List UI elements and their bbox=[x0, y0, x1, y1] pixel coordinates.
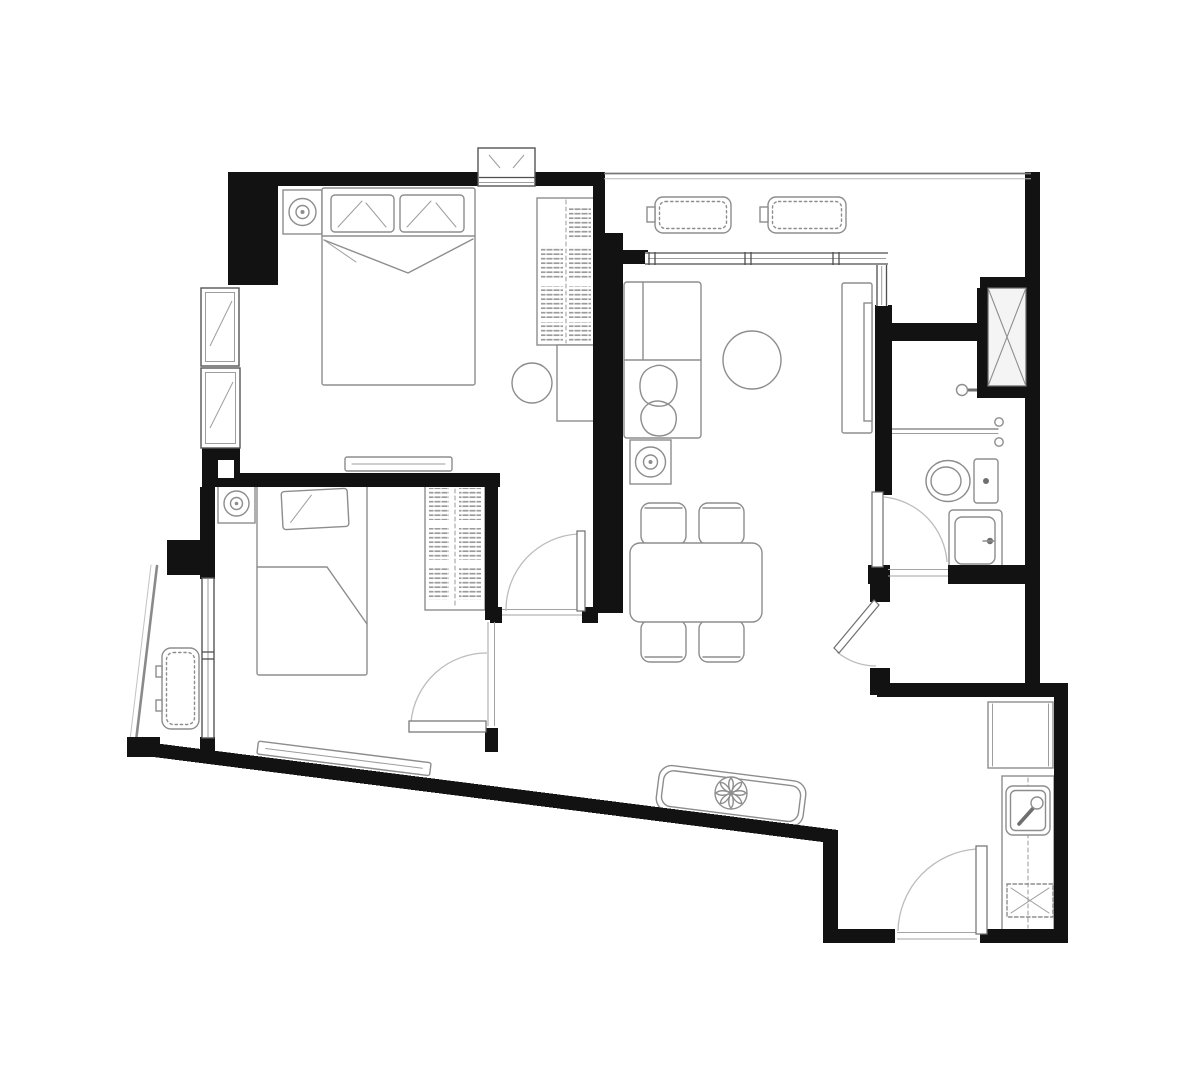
bedroom2-door bbox=[409, 622, 495, 732]
wall-segment bbox=[870, 584, 890, 602]
wall-segment bbox=[205, 473, 500, 487]
wall-segment bbox=[485, 728, 498, 752]
toilet bbox=[926, 459, 998, 503]
wall-segment bbox=[875, 305, 892, 495]
master-vent-window-box bbox=[478, 148, 535, 186]
furniture-layer bbox=[130, 188, 1054, 930]
wall-segment bbox=[1054, 697, 1068, 943]
ledge-condenser-unit-2 bbox=[760, 197, 846, 233]
dining-chair-2 bbox=[699, 503, 744, 545]
bedroom2-nightstand-with-lamp bbox=[218, 484, 255, 523]
master-casement-window-upper bbox=[201, 288, 239, 366]
bedroom2-single-bed bbox=[257, 484, 367, 675]
kitchen-sink bbox=[1006, 786, 1050, 835]
wall-segment bbox=[127, 737, 160, 757]
master-door bbox=[502, 531, 585, 615]
bedroom2-balcony-window bbox=[202, 578, 214, 738]
refrigerator bbox=[988, 702, 1053, 768]
wall-segment bbox=[892, 323, 987, 341]
bedroom2-wardrobe bbox=[425, 480, 485, 610]
living-tv-console bbox=[842, 283, 872, 433]
flower-decor bbox=[715, 777, 747, 809]
tv bbox=[864, 303, 872, 421]
master-tv-console bbox=[345, 457, 452, 471]
balcony-parapet bbox=[130, 565, 157, 741]
wall-notch bbox=[218, 460, 234, 478]
master-double-bed bbox=[322, 188, 475, 385]
wall-segment bbox=[623, 250, 648, 264]
master-nightstand-with-lamp bbox=[283, 190, 322, 234]
living-sofa bbox=[624, 282, 701, 438]
master-dresser-desk bbox=[557, 345, 595, 421]
master-wardrobe bbox=[537, 198, 595, 345]
dining-chair-4 bbox=[699, 620, 744, 662]
bathroom-glass-partition bbox=[890, 418, 1003, 446]
wall-segment bbox=[823, 830, 838, 943]
service-shaft bbox=[988, 288, 1026, 386]
balcony-condenser-unit bbox=[156, 648, 199, 729]
wall-segment bbox=[980, 929, 1068, 943]
wall-segment bbox=[868, 565, 890, 584]
entrance-door bbox=[897, 846, 987, 939]
wall-segment bbox=[877, 683, 1068, 697]
master-casement-window-lower bbox=[201, 368, 240, 448]
vanity-sink bbox=[949, 510, 1002, 571]
kitchen-counter bbox=[1002, 776, 1054, 930]
wall-segment bbox=[167, 540, 215, 575]
wall-right-outer bbox=[1025, 172, 1040, 683]
wall-segment bbox=[485, 473, 498, 620]
partition-knob bbox=[995, 438, 1003, 446]
dining-table-set bbox=[630, 503, 762, 662]
living-side-table-with-lamp bbox=[630, 440, 671, 484]
living-coffee-table bbox=[723, 331, 781, 389]
ledge-edge-line bbox=[604, 174, 1031, 179]
vestibule-angled-door bbox=[834, 600, 879, 666]
ledge-condenser-unit-1 bbox=[647, 197, 731, 233]
wall-segment bbox=[977, 288, 988, 398]
wall-segment bbox=[228, 172, 605, 186]
dining-chair-1 bbox=[641, 503, 686, 545]
bathroom-door bbox=[872, 492, 948, 576]
wall-segment bbox=[593, 233, 623, 613]
dining-table bbox=[630, 543, 762, 622]
partition-knob bbox=[995, 418, 1003, 426]
floor-plan-page bbox=[0, 0, 1200, 1090]
wall-segment bbox=[948, 565, 1040, 584]
master-stool bbox=[512, 363, 552, 403]
wall-segment bbox=[228, 172, 278, 285]
floor-plan-drawing bbox=[0, 0, 1200, 1090]
dining-chair-3 bbox=[641, 620, 686, 662]
